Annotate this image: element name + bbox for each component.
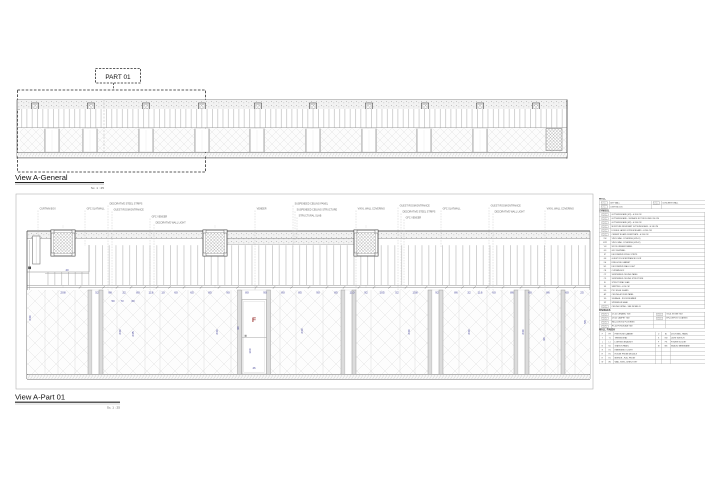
dimension-value-small: 46 xyxy=(252,366,256,370)
callout-label: DECORATIVE WALL LIGHT xyxy=(156,222,187,225)
door-jamb xyxy=(82,129,84,152)
dimension-value: 85 xyxy=(298,291,302,295)
dimension-value-vertical: 90 xyxy=(236,326,240,330)
legend-wallfinish-table: FFHFIRE HOSE CABINETDB1DOOR BELL PANELTT… xyxy=(599,332,705,364)
dimension-value: 90 xyxy=(316,291,320,295)
hatch-swatch-icon xyxy=(602,313,609,316)
legend-row: LIGHT BLOCK xyxy=(599,205,705,209)
column-corner-tick xyxy=(224,230,227,233)
column-stub-hatch xyxy=(200,104,205,109)
dimension-value-vertical: 90 xyxy=(542,337,546,341)
dimension-value-vertical: 230 xyxy=(118,329,122,334)
door-jamb-strip xyxy=(352,290,356,374)
door-jamb xyxy=(416,129,418,152)
dimension-value: 90 xyxy=(226,291,230,295)
dimension-value: 85 xyxy=(334,291,338,295)
floor-band xyxy=(27,374,590,379)
dimension-value: 208 xyxy=(60,291,65,295)
dimension-value-small: 50 xyxy=(111,299,115,303)
column-section-hatch xyxy=(54,233,73,254)
dimension-value: 86 xyxy=(454,291,458,295)
dimension-value-vertical: 100 xyxy=(248,348,252,353)
legend-symbol-table: GYPSUM BOARD (M1) - H 200 CMGYPSUM BOARD… xyxy=(599,212,705,308)
dimension-value-small: 60 xyxy=(131,299,135,303)
door-jamb-strip xyxy=(238,290,242,374)
door-jamb xyxy=(319,129,321,152)
column-corner-tick xyxy=(375,253,378,256)
legend-row: PT-01 PORCELAIN TILE xyxy=(599,324,705,328)
dimension-value: 110 xyxy=(350,291,355,295)
general-end-panel xyxy=(546,129,562,151)
dimension-value-vertical: 230 xyxy=(521,329,525,334)
column-corner-tick xyxy=(224,253,227,256)
column-corner-tick xyxy=(203,230,206,233)
drawing-sheet: PART 01 View A-General Sc. 1 : 25 xyxy=(0,0,705,498)
dimension-value-small: 40 xyxy=(65,268,69,272)
callout-label: SUSPENDED CEILING PANEL xyxy=(295,203,329,206)
legend-cell xyxy=(599,304,611,308)
hatch-swatch-icon xyxy=(602,229,609,232)
callout-label: GUEST ROOM ENTRANCE xyxy=(114,209,145,212)
hatch-swatch-icon xyxy=(602,325,609,328)
dimension-value-vertical: 230 xyxy=(28,315,32,320)
door-recess xyxy=(345,290,352,374)
dimension-value: 60 xyxy=(174,291,178,295)
column-stub-hatch xyxy=(367,104,372,109)
callout-label: GFC VENEER xyxy=(406,217,422,220)
callout-label: GFC VENEER xyxy=(152,216,168,219)
column-corner-tick xyxy=(375,230,378,233)
legend-row: WW1WALL SIGN - DIRECTORY xyxy=(599,360,705,364)
part01-view: CURTAIN BOXGFC SLATWALLDECORATIVE STEEL … xyxy=(15,194,593,410)
dimension-value: 10 xyxy=(161,291,165,295)
door-jamb-strip xyxy=(439,290,443,374)
column-corner-tick xyxy=(51,253,54,256)
door-jamb-strip xyxy=(525,290,529,374)
hatch-swatch-icon xyxy=(656,313,663,316)
door-jamb xyxy=(361,129,363,152)
legend-row: CEILING DETAIL - SEE DETAIL 05 xyxy=(599,304,705,308)
dimension-value: 85 xyxy=(208,291,212,295)
callout-label: STRUCTURAL SLAB xyxy=(299,215,322,218)
door-jamb xyxy=(96,129,98,152)
column-stub-hatch xyxy=(534,104,539,109)
legend-cell: LIGHT BLOCK xyxy=(609,205,651,209)
column-corner-tick xyxy=(203,253,206,256)
callout-label: VINYL WALL COVERING xyxy=(547,208,574,211)
dimension-value-vertical: 230 xyxy=(215,329,219,334)
door-jamb-strip xyxy=(88,290,92,374)
dimension-value: 32 xyxy=(467,291,471,295)
dimension-value-vertical: 58 xyxy=(583,320,587,324)
door-jamb-strip xyxy=(428,290,432,374)
dimension-value: 60 xyxy=(492,291,496,295)
door-handle-icon xyxy=(245,335,247,337)
hatch-swatch-icon xyxy=(602,213,609,216)
legend-cell xyxy=(599,205,609,209)
hatch-swatch-icon xyxy=(601,205,608,208)
dimension-value: 80 xyxy=(136,291,140,295)
hatch-swatch-icon xyxy=(602,317,609,320)
part01-label: PART 01 xyxy=(105,74,131,81)
door-jamb xyxy=(194,129,196,152)
general-view-title: View A-General xyxy=(15,173,68,182)
dimension-value: 25 xyxy=(580,291,584,295)
column-corner-tick xyxy=(72,230,75,233)
door-jamb-strip xyxy=(514,290,518,374)
dimension-value-vertical: 230 xyxy=(467,329,471,334)
door-jamb xyxy=(249,129,251,152)
dimension-value: 86 xyxy=(510,291,514,295)
door-jamb xyxy=(263,129,265,152)
ceiling-slats xyxy=(45,245,590,285)
callout-label: SUSPENDED CEILING STRUCTURE xyxy=(297,209,338,212)
fire-marker-layer: F xyxy=(252,317,256,324)
legend-wall-table: DRY WALLCONCRETE WALLLIGHT BLOCK xyxy=(599,201,705,209)
door-jamb-strip xyxy=(267,290,271,374)
slab-band xyxy=(27,231,590,245)
callout-label: GUEST ROOM ENTRANCE xyxy=(400,205,431,208)
fire-cabinet-marker: F xyxy=(252,317,256,324)
dimension-value: 32 xyxy=(122,291,126,295)
door-jamb xyxy=(208,129,210,152)
legend-finishes-table: CT-01 CERAMIC TILEST-01 STONE TILECP-01 … xyxy=(599,312,705,328)
door-jamb-strip xyxy=(341,290,345,374)
dimension-value: 80 xyxy=(245,291,249,295)
door-jamb-strip xyxy=(561,290,565,374)
dimension-value: 105 xyxy=(379,291,384,295)
dimension-value: 92 xyxy=(364,291,368,295)
callout-label: GFC SLATWALL xyxy=(87,208,106,211)
dimension-value: 98 xyxy=(108,291,112,295)
legend-cell xyxy=(651,205,661,209)
hatch-swatch-icon xyxy=(602,233,609,236)
callout-label: VENEER xyxy=(257,208,267,211)
legend-cell xyxy=(654,324,666,328)
general-view: PART 01 View A-General Sc. 1 : 25 xyxy=(15,69,567,191)
legend-cell: CEILING DETAIL - SEE DETAIL 05 xyxy=(611,304,705,308)
door-jamb xyxy=(305,129,307,152)
general-slab-band xyxy=(17,100,567,110)
column-stub-hatch xyxy=(144,104,149,109)
door-jamb xyxy=(472,129,474,152)
column-corner-tick xyxy=(354,230,357,233)
door-jamb xyxy=(430,129,432,152)
column-section-hatch xyxy=(206,233,225,254)
door-jamb-strip xyxy=(99,290,103,374)
dimension-value: 116 xyxy=(478,291,483,295)
column-section-hatch xyxy=(357,233,376,254)
part01-view-scale: Sc. 1 : 25 xyxy=(107,406,120,410)
column-stub-hatch xyxy=(256,104,261,109)
hatch-swatch-icon xyxy=(602,225,609,228)
dimension-value: 52 xyxy=(95,291,99,295)
column-stub-hatch xyxy=(89,104,94,109)
column-corner-tick xyxy=(51,230,54,233)
dimension-value: 80 xyxy=(281,291,285,295)
callout-label: GUEST ROOM ENTRANCE xyxy=(491,205,522,208)
fire-cabinet-door xyxy=(242,290,267,374)
door-jamb xyxy=(152,129,154,152)
part01-view-title: View A-Part 01 xyxy=(15,393,65,402)
dimension-value: 116 xyxy=(149,291,154,295)
column-stub-hatch xyxy=(423,104,428,109)
dimension-value-vertical: 235 xyxy=(131,331,135,336)
hatch-swatch-icon xyxy=(602,221,609,224)
legend-cell: W1 xyxy=(605,360,613,364)
legend-cell xyxy=(661,205,705,209)
dimension-value: 92 xyxy=(435,291,439,295)
legend: WALL DRY WALLCONCRETE WALLLIGHT BLOCK SY… xyxy=(599,196,705,391)
dimension-value: 60 xyxy=(565,291,569,295)
callout-label: DECORATIVE STEEL STRIPS xyxy=(403,211,436,214)
door-jamb xyxy=(375,129,377,152)
dimension-value: 60 xyxy=(528,291,532,295)
hatch-swatch-icon xyxy=(656,317,663,320)
legend-cell xyxy=(666,324,705,328)
legend-cell xyxy=(662,360,670,364)
dimension-value: 90 xyxy=(263,291,267,295)
dimension-value: 86 xyxy=(546,291,550,295)
legend-cell: WALL SIGN - DIRECTORY xyxy=(614,360,656,364)
column-stub-hatch xyxy=(478,104,483,109)
door-recess xyxy=(92,290,99,374)
hatch-swatch-icon xyxy=(602,305,609,308)
general-slat-band xyxy=(20,109,567,128)
hatch-swatch-icon xyxy=(653,201,660,204)
callout-label: GFC SLATWALL xyxy=(443,208,462,211)
dimension-value: 158 xyxy=(412,291,417,295)
dimension-value-vertical: 230 xyxy=(407,329,411,334)
door-recess xyxy=(432,290,439,374)
dimension-value-small: 73 xyxy=(120,299,124,303)
dimension-value-vertical: 230 xyxy=(300,328,304,333)
dimension-value: 52 xyxy=(395,291,399,295)
column-corner-tick xyxy=(354,253,357,256)
door-jamb xyxy=(138,129,140,152)
column-stub-hatch xyxy=(311,104,316,109)
callout-label: DECORATIVE WALL LIGHT xyxy=(495,211,526,214)
legend-cell xyxy=(670,360,705,364)
column-stub-hatch xyxy=(33,104,38,109)
door-jamb xyxy=(58,129,60,152)
callout-label: DECORATIVE STEEL STRIPS xyxy=(110,203,143,206)
general-floor xyxy=(17,152,567,159)
legend-cell: PT-01 PORCELAIN TILE xyxy=(611,324,654,328)
door-jamb xyxy=(486,129,488,152)
hatch-swatch-icon xyxy=(602,321,609,324)
dimension-value: 65 xyxy=(190,291,194,295)
callout-label: CURTAIN BOX xyxy=(40,208,57,211)
column-corner-tick xyxy=(72,253,75,256)
door-jamb xyxy=(44,129,46,152)
callout-label: VINYL WALL COVERING xyxy=(358,208,385,211)
legend-cell xyxy=(599,324,611,328)
general-view-scale: Sc. 1 : 25 xyxy=(91,186,104,190)
hatch-swatch-icon xyxy=(602,217,609,220)
hatch-swatch-icon xyxy=(601,201,608,204)
